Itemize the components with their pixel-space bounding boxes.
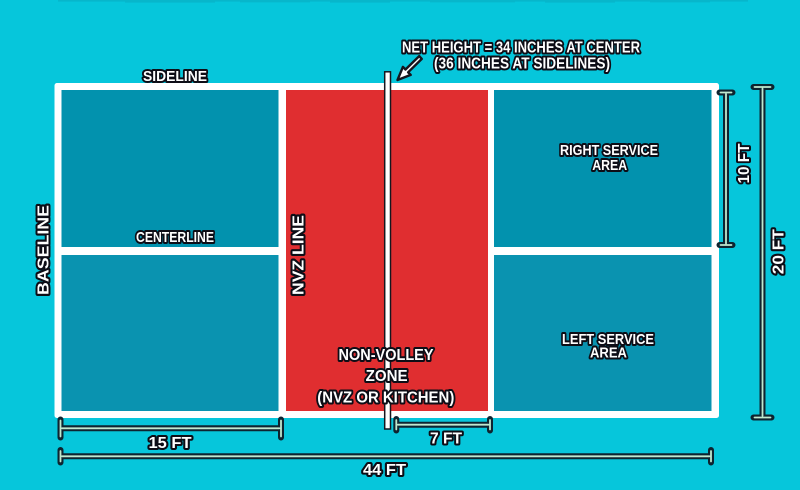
svg-text:SIDELINE: SIDELINE bbox=[143, 68, 207, 85]
svg-text:NVZ LINE: NVZ LINE bbox=[290, 215, 307, 295]
svg-text:20 FT: 20 FT bbox=[770, 229, 787, 274]
svg-text:NON-VOLLEY: NON-VOLLEY bbox=[339, 347, 434, 364]
svg-text:NET HEIGHT = 34 INCHES AT CENT: NET HEIGHT = 34 INCHES AT CENTER bbox=[402, 40, 640, 57]
svg-text:BASELINE: BASELINE bbox=[35, 205, 52, 295]
svg-text:CENTERLINE: CENTERLINE bbox=[136, 229, 214, 246]
svg-text:15 FT: 15 FT bbox=[149, 435, 193, 452]
svg-text:AREA: AREA bbox=[592, 157, 627, 174]
svg-text:10 FT: 10 FT bbox=[736, 143, 753, 183]
svg-text:(36 INCHES AT SIDELINES): (36 INCHES AT SIDELINES) bbox=[434, 56, 610, 73]
svg-text:7 FT: 7 FT bbox=[430, 431, 463, 448]
svg-text:(NVZ OR KITCHEN): (NVZ OR KITCHEN) bbox=[317, 390, 454, 407]
svg-text:44 FT: 44 FT bbox=[363, 462, 407, 479]
svg-text:AREA: AREA bbox=[590, 344, 627, 361]
svg-text:ZONE: ZONE bbox=[366, 368, 408, 385]
